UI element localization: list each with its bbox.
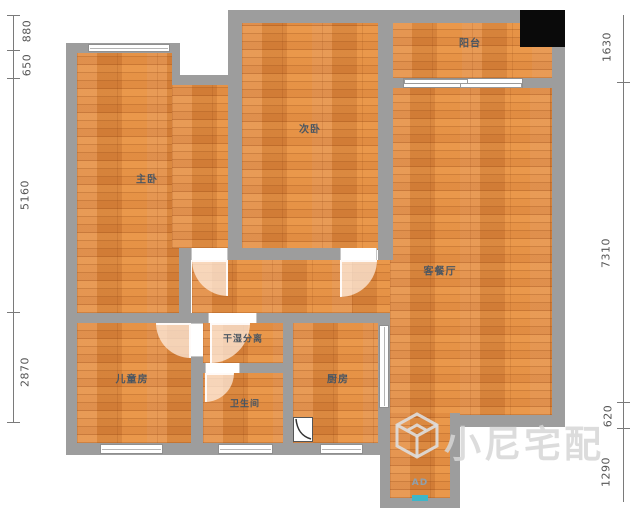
dry-wet-area-label: 干湿分离 bbox=[223, 332, 263, 345]
kids-room-label: 儿童房 bbox=[116, 371, 149, 386]
master-top-window bbox=[88, 44, 170, 52]
wall-second-bedroom-right bbox=[378, 23, 393, 260]
master-bedroom-floor bbox=[77, 53, 179, 313]
entry-ad-label: AD bbox=[412, 478, 428, 488]
watermark-text: 小尼宅配 bbox=[444, 414, 604, 468]
right-tick-2 bbox=[617, 402, 630, 403]
left-tick-2 bbox=[7, 50, 20, 51]
kitchen-bottom-window bbox=[320, 444, 363, 454]
bathroom-label: 卫生间 bbox=[230, 397, 260, 410]
balcony-sliding-door bbox=[403, 78, 523, 88]
dimension-right-1630: 1630 bbox=[601, 32, 614, 62]
master-bedroom-label: 主卧 bbox=[136, 171, 158, 186]
wall-balcony-sill-right bbox=[523, 78, 552, 88]
dimension-left-2870: 2870 bbox=[19, 357, 32, 387]
wall-second-bedroom-bottom bbox=[237, 248, 340, 260]
left-tick-3 bbox=[7, 78, 20, 79]
dry-wet-door-opening bbox=[208, 313, 257, 323]
wall-bath-kitchen bbox=[283, 313, 293, 443]
bathroom-door-opening bbox=[205, 363, 240, 373]
kids-room-door-opening bbox=[191, 323, 203, 357]
master-bedroom-floor-right bbox=[172, 85, 230, 248]
living-dining-label: 客餐厅 bbox=[424, 263, 457, 278]
wall-hall-stub bbox=[179, 248, 191, 313]
left-tick-4 bbox=[7, 312, 20, 313]
wall-mid-right bbox=[257, 313, 390, 323]
kitchen-side-door bbox=[379, 325, 389, 408]
kids-room-bottom-window bbox=[100, 444, 163, 454]
left-dimension-line bbox=[13, 15, 14, 422]
left-tick-5 bbox=[7, 422, 20, 423]
dimension-left-650: 650 bbox=[21, 54, 34, 77]
bathroom-bottom-window bbox=[218, 444, 273, 454]
sliding-pane-left bbox=[404, 79, 468, 84]
left-tick-1 bbox=[7, 15, 20, 16]
wall-mid-left bbox=[66, 313, 208, 323]
wall-outer-left bbox=[66, 43, 77, 455]
entry-door-marker bbox=[412, 495, 428, 501]
second-bedroom-label: 次卧 bbox=[299, 121, 321, 136]
wall-outer-right bbox=[552, 23, 565, 427]
second-bedroom-floor bbox=[242, 23, 378, 250]
living-dining-floor bbox=[390, 88, 552, 415]
wall-outer-top bbox=[228, 10, 565, 23]
dimension-right-7310: 7310 bbox=[600, 238, 613, 268]
dimension-left-5160: 5160 bbox=[19, 180, 32, 210]
wall-second-bedroom-left bbox=[228, 23, 242, 260]
shower-fixture-icon bbox=[293, 417, 313, 442]
floor-plan: 主卧 次卧 阳台 客餐厅 干湿分离 卫生间 厨房 儿童房 AD 880 650 … bbox=[0, 0, 640, 511]
right-tick-1 bbox=[617, 82, 630, 83]
cover-block bbox=[520, 10, 565, 47]
wall-balcony-sill-left bbox=[390, 78, 403, 88]
kitchen-label: 厨房 bbox=[327, 371, 349, 386]
master-door-opening bbox=[191, 248, 228, 260]
right-tick-3 bbox=[617, 428, 630, 429]
dimension-left-880: 880 bbox=[21, 20, 34, 43]
balcony-label: 阳台 bbox=[459, 35, 481, 50]
sliding-pane-right bbox=[460, 83, 522, 88]
watermark-cube-icon bbox=[393, 412, 441, 459]
second-bedroom-door-opening bbox=[340, 248, 377, 260]
